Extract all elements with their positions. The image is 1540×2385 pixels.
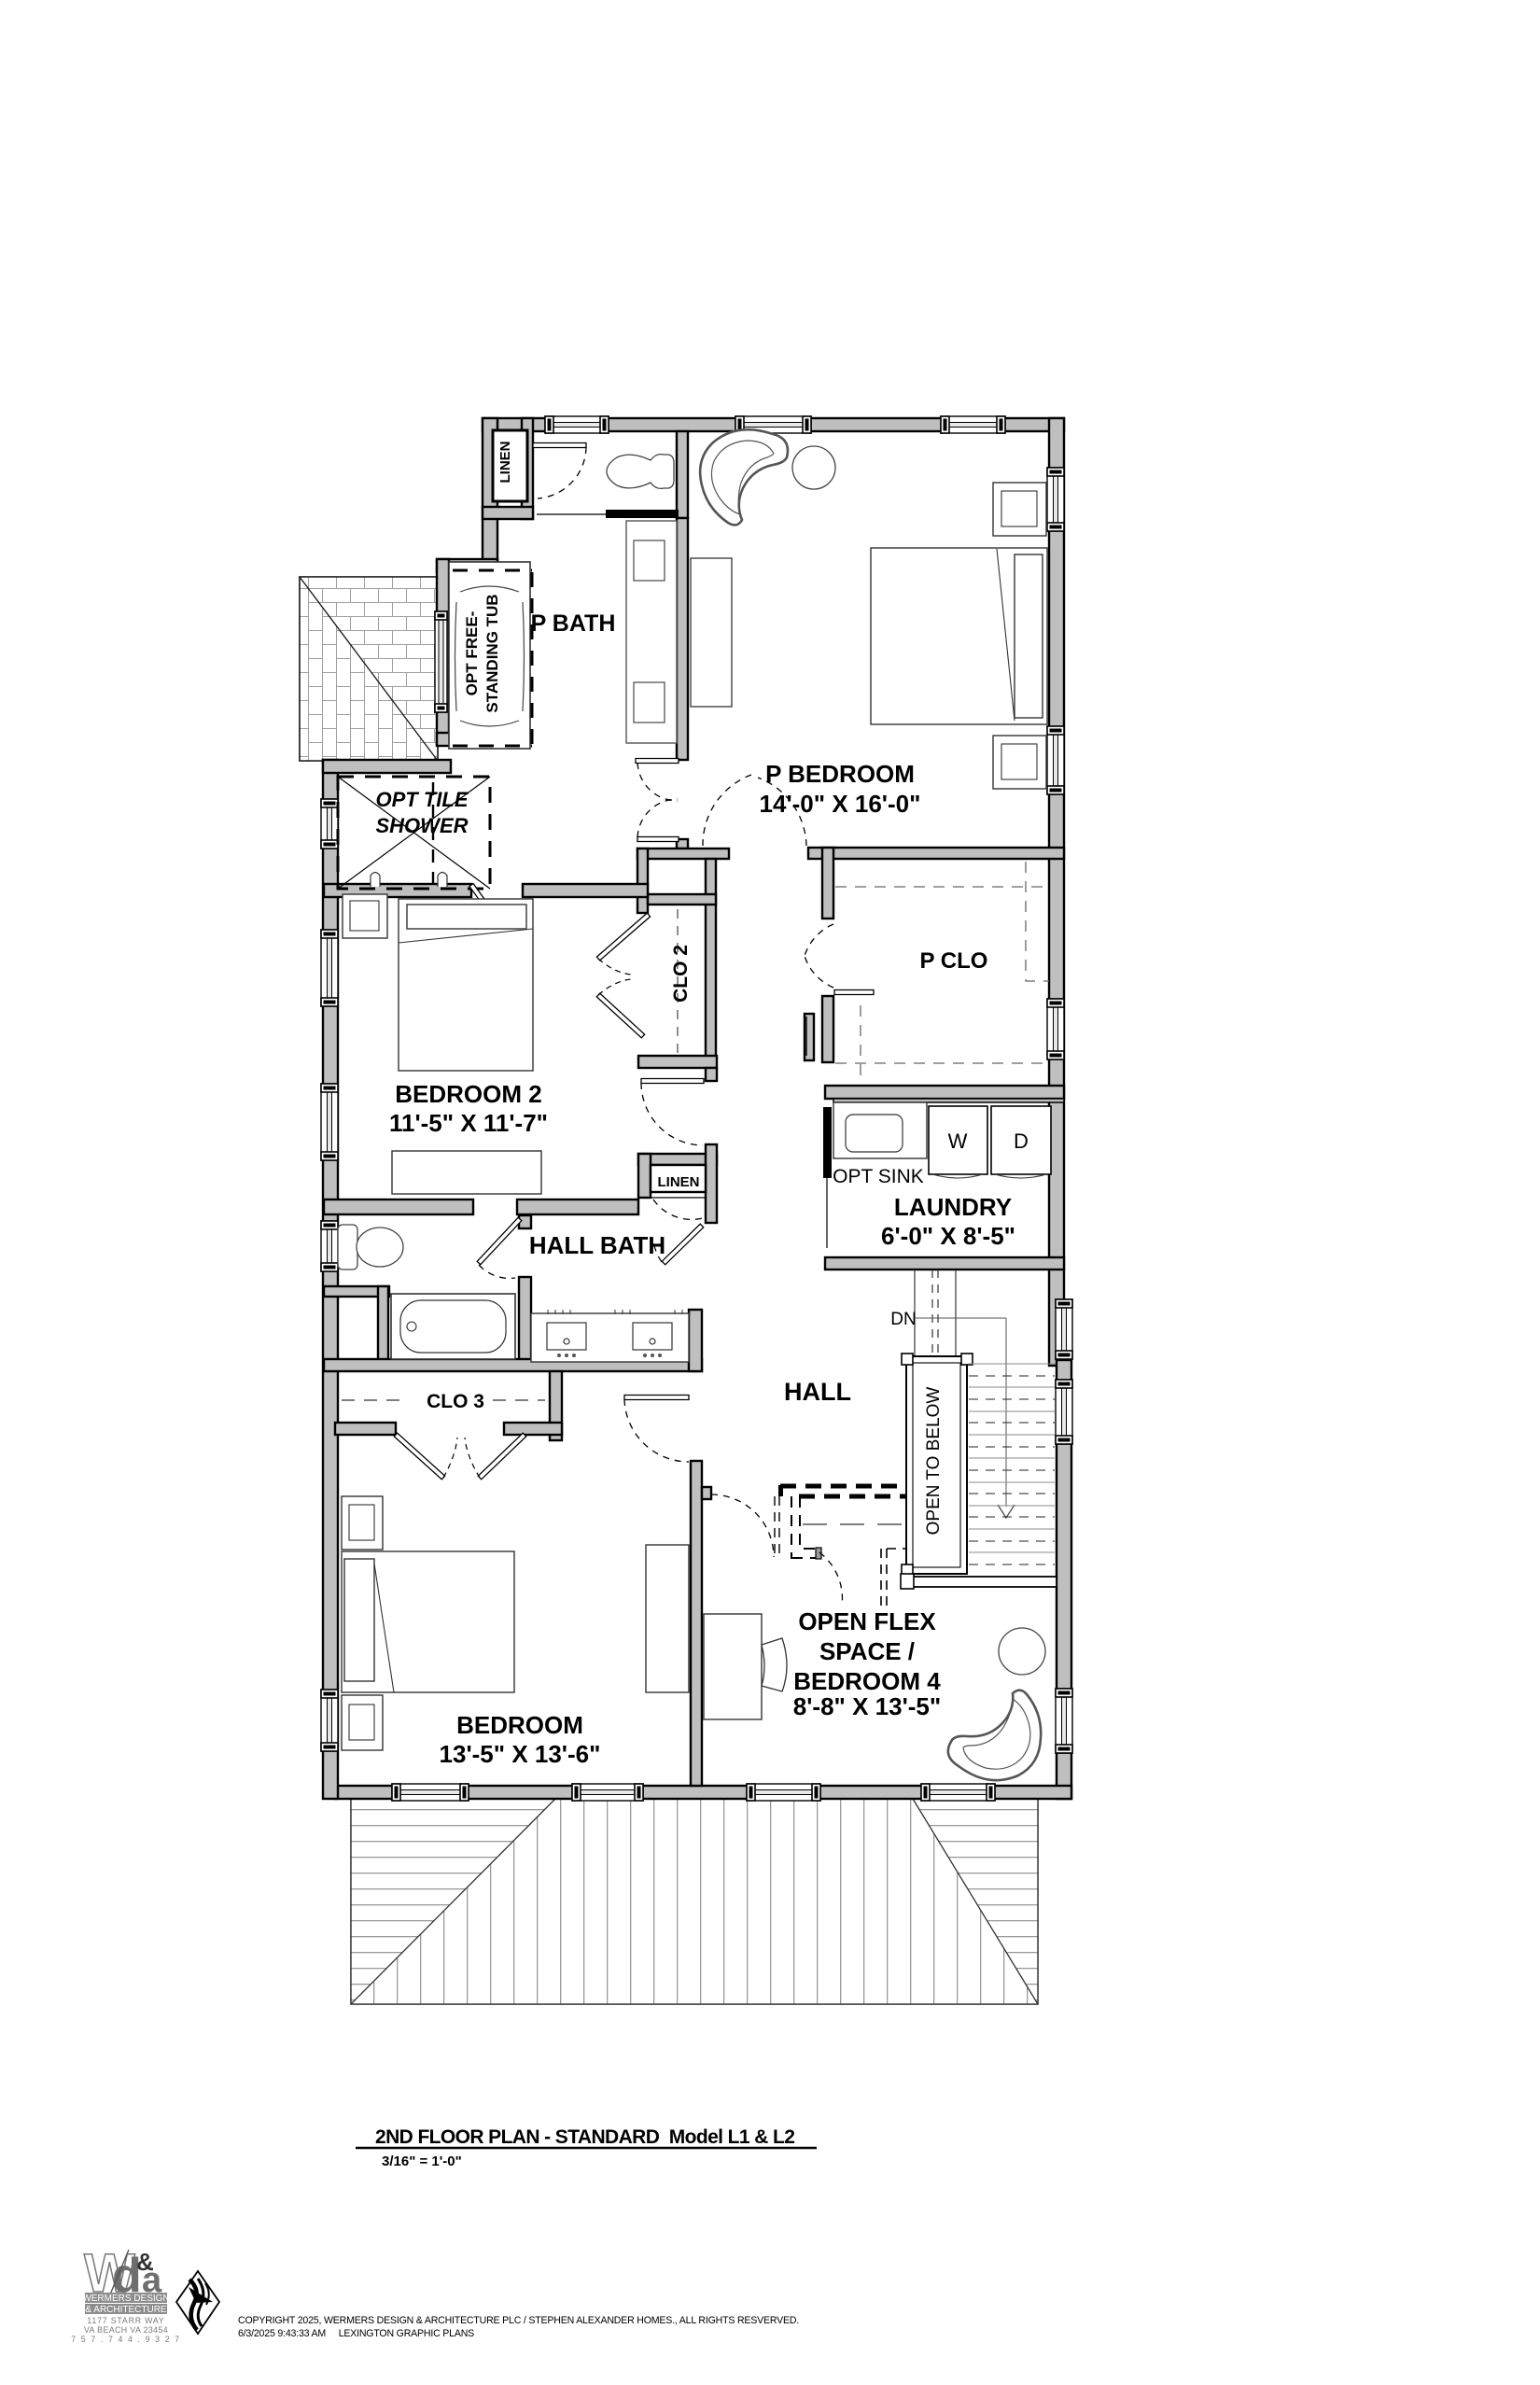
svg-text:14'-0" X 16'-0": 14'-0" X 16'-0" <box>760 790 921 818</box>
svg-text:6/3/2025 9:43:33 AM LEXING: 6/3/2025 9:43:33 AM LEXINGTON GRAPHIC PL… <box>238 2328 474 2339</box>
svg-text:1177 STARR WAY: 1177 STARR WAY <box>87 2316 164 2325</box>
svg-text:HALL BATH: HALL BATH <box>529 1231 665 1259</box>
svg-text:BEDROOM 2: BEDROOM 2 <box>395 1080 541 1108</box>
svg-text:LAUNDRY: LAUNDRY <box>894 1193 1012 1221</box>
svg-text:P BEDROOM: P BEDROOM <box>765 760 915 788</box>
svg-text:CLO 2: CLO 2 <box>670 945 692 1003</box>
svg-text:3/16" = 1'-0": 3/16" = 1'-0" <box>382 2154 462 2169</box>
svg-text:W: W <box>948 1129 968 1153</box>
svg-text:STANDING TUB: STANDING TUB <box>483 594 501 712</box>
svg-text:OPEN FLEX: OPEN FLEX <box>798 1607 936 1635</box>
svg-text:7 5 7 . 7 4 4 . 9 3 2 7: 7 5 7 . 7 4 4 . 9 3 2 7 <box>71 2335 181 2344</box>
svg-text:OPT FREE-: OPT FREE- <box>463 611 481 696</box>
svg-text:SPACE /: SPACE / <box>819 1637 915 1665</box>
svg-text:2ND FLOOR PLAN - STANDARD Mod: 2ND FLOOR PLAN - STANDARD Model L1 & L2 <box>375 2126 794 2148</box>
svg-text:P CLO: P CLO <box>920 948 988 974</box>
svg-text:P BATH: P BATH <box>531 610 616 637</box>
svg-text:D: D <box>1014 1129 1029 1153</box>
svg-text:LINEN: LINEN <box>658 1174 700 1190</box>
svg-text:11'-5" X 11'-7": 11'-5" X 11'-7" <box>389 1109 548 1137</box>
svg-text:6'-0" X 8'-5": 6'-0" X 8'-5" <box>881 1222 1015 1250</box>
svg-text:BEDROOM 4: BEDROOM 4 <box>793 1667 941 1695</box>
svg-text:& ARCHITECTURE: & ARCHITECTURE <box>85 2305 167 2315</box>
svg-text:LINEN: LINEN <box>497 442 513 484</box>
svg-text:VA BEACH VA 23454: VA BEACH VA 23454 <box>84 2325 168 2335</box>
svg-text:13'-5" X 13'-6": 13'-5" X 13'-6" <box>440 1740 601 1768</box>
svg-text:8'-8" X 13'-5": 8'-8" X 13'-5" <box>793 1692 941 1720</box>
svg-text:OPEN TO BELOW: OPEN TO BELOW <box>924 1387 944 1536</box>
svg-text:DN: DN <box>890 1310 916 1329</box>
svg-text:CLO 3: CLO 3 <box>427 1391 484 1412</box>
svg-text:WERMERS DESIGN: WERMERS DESIGN <box>82 2294 169 2304</box>
svg-text:OPT TILE: OPT TILE <box>376 788 469 811</box>
svg-text:BEDROOM: BEDROOM <box>456 1711 583 1739</box>
svg-text:COPYRIGHT 2025, WERMERS DESIGN: COPYRIGHT 2025, WERMERS DESIGN & ARCHITE… <box>238 2315 799 2326</box>
svg-text:SHOWER: SHOWER <box>376 814 469 837</box>
svg-text:OPT SINK: OPT SINK <box>833 1166 924 1187</box>
svg-text:HALL: HALL <box>784 1378 851 1406</box>
